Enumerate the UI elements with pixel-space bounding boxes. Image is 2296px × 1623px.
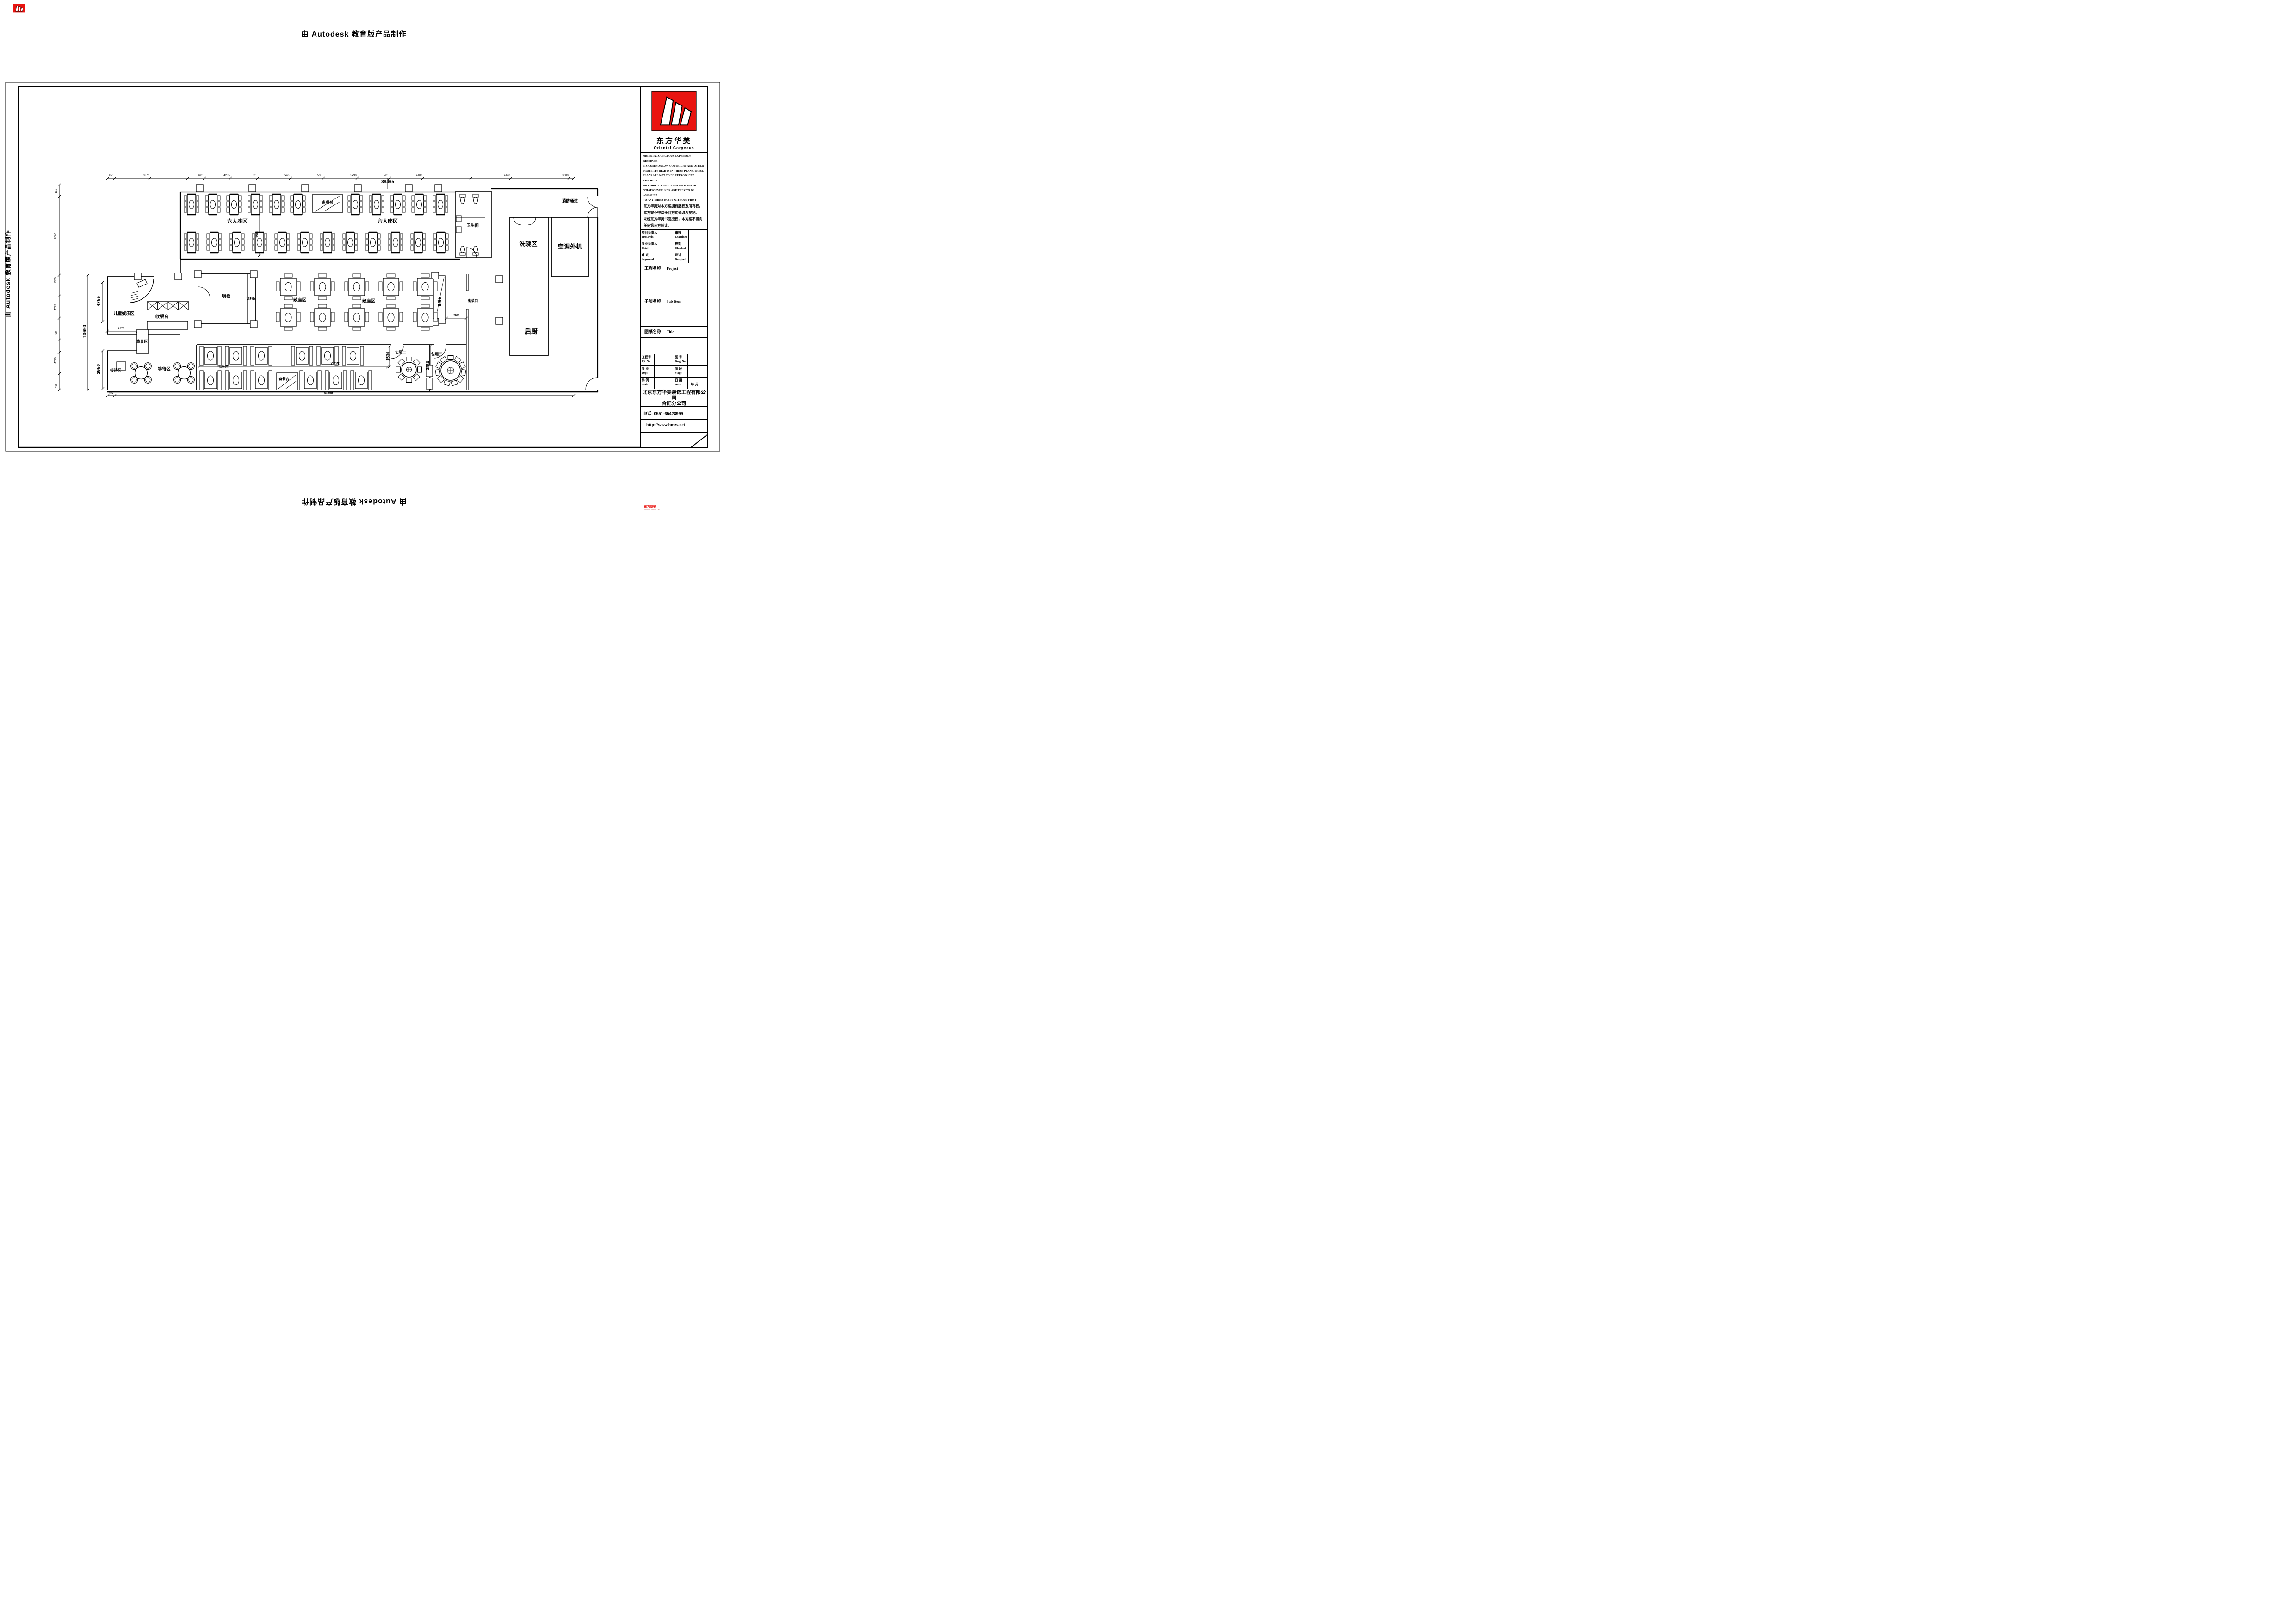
dim-tick-left: 460	[55, 331, 58, 336]
dim-2375: 2375	[118, 328, 124, 330]
dim-tick-left: 8000	[54, 233, 57, 239]
dim-450: 450	[109, 392, 113, 395]
dim-tick-left: 1350	[54, 277, 57, 283]
copyright-text: ORIENTAL GORGEOUS EXPRESSLY RESERVES ITS…	[641, 153, 707, 202]
dim-tick-top: 4235	[223, 174, 229, 177]
dim-1530: 1530	[386, 352, 390, 361]
field-stage: 阶 段Stage	[674, 366, 688, 378]
zone-label-kids-area: 儿童娱乐区	[113, 312, 134, 316]
dim-aisle-7720: 7720	[330, 362, 340, 366]
subitem-value	[641, 307, 707, 327]
disclaimer-text: 东方华美对本方案拥有版权及所有权。 本方案不得以任何方式修改及复制。 未经东方华…	[641, 202, 707, 230]
dim-tick-left: 150	[55, 189, 58, 193]
dim-tick-top: 4100	[416, 174, 422, 177]
dim-tick-top: 520	[252, 174, 256, 177]
field-stage-value	[688, 366, 707, 378]
zone-label-back-kitchen: 后厨	[525, 328, 538, 335]
dim-tick-left: 4775	[54, 304, 57, 310]
zone-label-pass-out: 出菜口	[468, 299, 478, 303]
company-name-cn: 东方华美	[641, 135, 707, 146]
field-chief-value	[658, 241, 674, 252]
zone-label-waiting: 等待区	[158, 367, 170, 372]
zone-label-free-seat-2: 散座区	[362, 299, 376, 304]
plot-stamp-bottom: 由 Autodesk 教育版产品制作	[285, 497, 423, 508]
field-date-value: 年 月	[688, 378, 707, 389]
company-block: 北京东方华美装饰工程有限公司 合肥分公司 安徽省合肥市马鞍山南路绿地赢海大厦B座…	[641, 389, 707, 407]
zone-label-condiment: 调料区	[247, 297, 256, 301]
dim-tick-top: 520	[384, 174, 388, 177]
field-checked-value	[689, 241, 707, 252]
field-examined: 审核Examined	[674, 230, 689, 241]
zone-label-prep-counter-bottom: 备餐台	[279, 377, 290, 381]
field-dept: 专 业Dept.	[641, 366, 655, 378]
titleblock-tail	[641, 433, 707, 447]
field-date: 日 期Date	[674, 378, 688, 389]
dim-total-bottom: 41865	[324, 392, 333, 395]
dim-tick-left: 400	[55, 384, 58, 388]
dim-tick-top: 620	[198, 174, 203, 177]
field-designed: 设计Designed	[674, 252, 689, 263]
field-item-prin: 项目负责人Item.Prin	[641, 230, 658, 241]
zone-label-restroom: 卫生间	[467, 223, 479, 228]
zone-label-reception: 接待区	[110, 369, 121, 372]
title-block: 东方华美 Oriental Gorgeous ORIENTAL GORGEOUS…	[640, 87, 707, 447]
corner-logo-icon	[13, 4, 25, 13]
field-dwg-no: 图 号Dwg. No.	[674, 354, 688, 366]
field-dwg-no-value	[688, 354, 707, 366]
dim-2641: 2641	[453, 314, 459, 317]
company-logo-icon	[651, 91, 697, 131]
dim-tick-top: 5495	[284, 174, 290, 177]
zone-label-cashier: 收银台	[155, 315, 169, 319]
field-checked: 校对Checked	[674, 241, 689, 252]
watermark-brand: 东方华美	[644, 505, 660, 508]
dim-tick-top: 3375	[143, 174, 149, 177]
company-name: 北京东方华美装饰工程有限公司	[641, 390, 707, 401]
branch-name: 合肥分公司	[641, 401, 707, 407]
zone-label-private-room-3: 包厢三	[431, 353, 442, 356]
dim-tick-top: 5490	[350, 174, 356, 177]
project-name-value	[641, 274, 707, 296]
zone-label-six-seat-2: 六人座区	[378, 219, 398, 224]
field-chief: 专业负责人Chief	[641, 241, 658, 252]
dim-1500: 1500	[256, 231, 259, 237]
zone-label-free-seat-1: 散座区	[293, 298, 307, 303]
zone-label-scenery: 造景区	[136, 340, 148, 344]
project-name-label: 工程名称Project	[641, 263, 707, 274]
field-approved: 审 定Approved	[641, 252, 658, 263]
logo-cell: 东方华美 Oriental Gorgeous	[641, 87, 707, 153]
zone-label-open-kitchen: 明档	[222, 294, 230, 299]
company-name-en: Oriental Gorgeous	[641, 146, 707, 150]
dim-tick-top: 4190	[504, 174, 510, 177]
drawing-info-table: 工程号Pjt .No. 图 号Dwg. No. 专 业Dept. 阶 段Stag…	[641, 354, 707, 389]
field-pjt-no-value	[655, 354, 674, 366]
dim-tick-top: 535	[317, 174, 322, 177]
sheet-title-value	[641, 338, 707, 354]
website-row: http://www.hmzs.net	[641, 420, 707, 433]
phone-row: 电话: 0551-65428999	[641, 407, 707, 420]
dim-tick-top: 3000	[562, 174, 568, 177]
zone-label-booth-area: 卡座区	[217, 365, 229, 369]
zone-label-private-room-2: 包厢二	[395, 351, 406, 354]
zone-label-prep-counter-right: 备餐台	[438, 296, 441, 307]
corner-cut-line	[689, 434, 707, 447]
floor-plan-drawing	[0, 0, 725, 513]
field-scale-value	[655, 378, 674, 389]
zone-label-fire-passage: 消防通道	[562, 199, 578, 203]
plot-stamp-left: 由 Autodesk 教育版产品制作	[3, 218, 12, 329]
field-approved-value	[658, 252, 674, 263]
personnel-table: 项目负责人Item.Prin 审核Examined 专业负责人Chief 校对C…	[641, 230, 707, 263]
field-pjt-no: 工程号Pjt .No.	[641, 354, 655, 366]
field-dept-value	[655, 366, 674, 378]
field-scale: 比 例Scale	[641, 378, 655, 389]
watermark-site: www.hmzs.net	[644, 508, 660, 511]
sheet-title-label: 图纸名称Title	[641, 327, 707, 338]
zone-label-dishwashing: 洗碗区	[519, 241, 537, 247]
watermark: 东方华美 www.hmzs.net	[644, 505, 660, 511]
field-item-prin-value	[658, 230, 674, 241]
dim-tick-top: 450	[109, 174, 113, 177]
subitem-label: 子项名称Sub Item	[641, 296, 707, 307]
dim-tick-left: 4770	[54, 357, 57, 363]
zone-label-ac-outdoor: 空调外机	[558, 244, 582, 250]
dim-total-top: 38465	[381, 180, 394, 185]
zone-label-prep-counter-top: 备餐台	[322, 201, 333, 204]
field-examined-value	[689, 230, 707, 241]
zone-label-six-seat-1: 六人座区	[227, 219, 248, 224]
plot-stamp-top: 由 Autodesk 教育版产品制作	[285, 28, 423, 39]
dim-4755: 4755	[97, 296, 101, 306]
dim-3820: 3820	[426, 361, 430, 370]
dim-10690: 10690	[83, 325, 87, 338]
field-designed-value	[689, 252, 707, 263]
dim-2950: 2950	[97, 364, 101, 374]
